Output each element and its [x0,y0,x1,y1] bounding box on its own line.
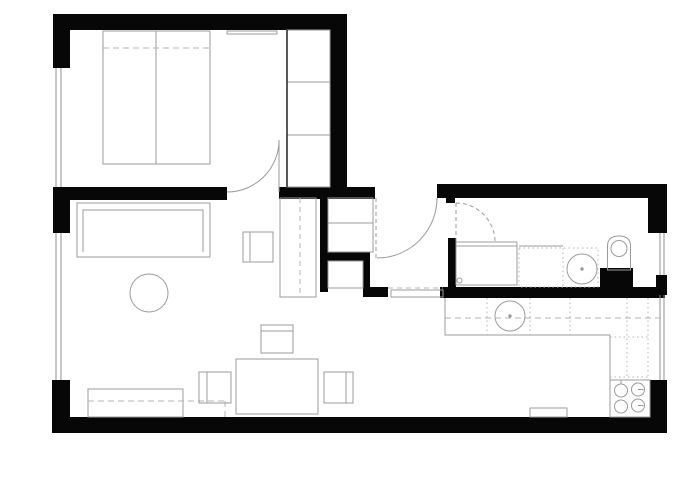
hall-threshold [388,288,443,297]
wall-top-bedroom [53,14,347,30]
kitchen-sink [495,301,525,331]
wall-bedroom-bottom-west [53,187,227,200]
wall-toilet-duct [600,268,633,288]
wall-hall-top-west [279,187,375,199]
chair-north [261,325,293,353]
door-entrance [376,198,437,258]
kitchen-counter [445,298,661,380]
window-bathroom-right [660,233,664,275]
wall-closet-stub [363,287,388,297]
wall-bedroom-right [330,14,347,192]
washing-machine [456,242,517,285]
chair-west [199,372,231,403]
wardrobe-bedroom [287,30,330,187]
wall-left-upper [53,14,70,68]
floor-mat [530,408,567,417]
wall-entry-jamb [446,195,455,203]
wall-right-upper [648,184,667,233]
bedroom-shelf [227,31,277,34]
floor-plan-canvas [0,0,700,494]
wall-bottom [53,417,667,433]
closet-upper-shelves [328,198,373,252]
wall-bathroom-left [448,238,456,287]
bed-double [103,31,210,164]
wardrobe-tall-living [280,198,316,297]
coffee-table-round [130,274,168,312]
floor-plan [0,0,700,494]
wall-closet-left [320,198,328,292]
door-bedroom [227,140,279,192]
closet-lower-cabinet [328,261,363,288]
wall-closet-right [363,261,370,288]
window-living-left [56,233,61,380]
wall-right-lower [650,380,667,433]
wall-closet-mid [320,252,370,261]
wall-bathroom-bottom [440,287,665,298]
chair-east [324,372,353,403]
dining-table [236,359,318,414]
toilet [608,236,631,270]
door-bathroom [456,203,495,242]
sideboard-living [77,203,210,257]
window-kitchen-right [660,295,664,380]
bathroom-vanity [519,246,598,287]
armchair-living [243,232,273,262]
wall-rightwing-top [437,184,667,198]
window-bedroom-left [56,68,61,187]
stove [610,380,650,417]
